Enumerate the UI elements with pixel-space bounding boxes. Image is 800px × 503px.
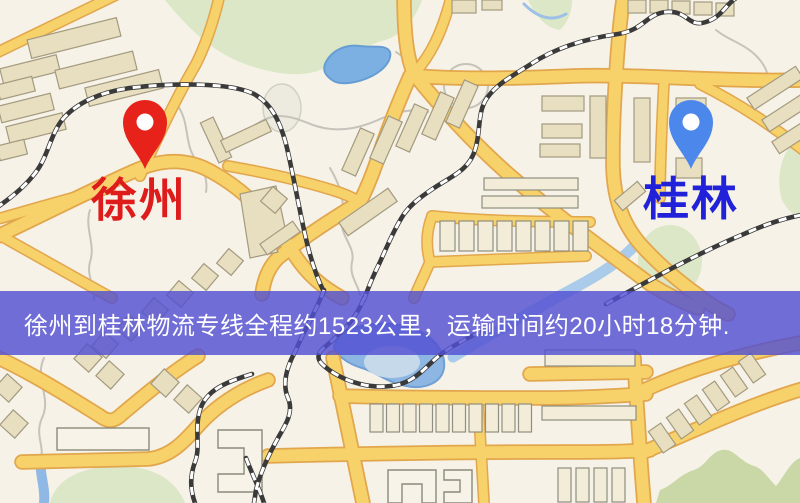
- guilin-label: 桂林: [643, 176, 739, 222]
- xuzhou-label: 徐州: [91, 177, 187, 223]
- map-art: [0, 0, 800, 503]
- route-info-banner: 徐州到桂林物流专线全程约1523公里，运输时间约20小时18分钟.: [0, 291, 800, 355]
- map-canvas[interactable]: 徐州 桂林 徐州到桂林物流专线全程约1523公里，运输时间约20小时18分钟.: [0, 0, 800, 503]
- route-info-text: 徐州到桂林物流专线全程约1523公里，运输时间约20小时18分钟.: [0, 306, 730, 341]
